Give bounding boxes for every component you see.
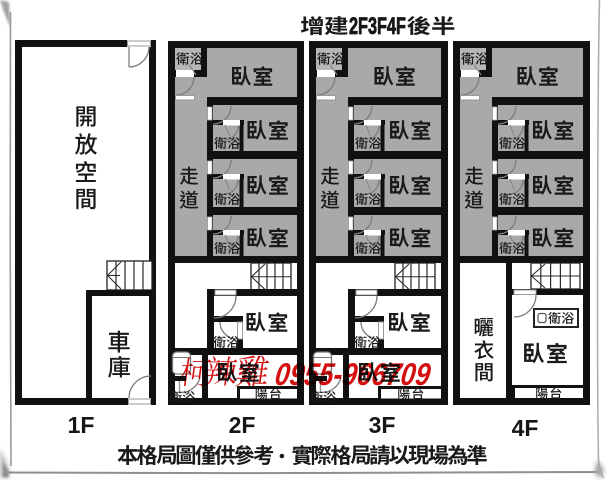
svg-text:0955-966709: 0955-966709: [273, 356, 433, 392]
svg-text:1F: 1F: [68, 412, 95, 438]
svg-text:2F: 2F: [229, 412, 256, 438]
svg-text:2F3F4F: 2F3F4F: [349, 13, 406, 40]
svg-text:3F: 3F: [369, 412, 396, 438]
svg-text:4F: 4F: [512, 415, 539, 441]
